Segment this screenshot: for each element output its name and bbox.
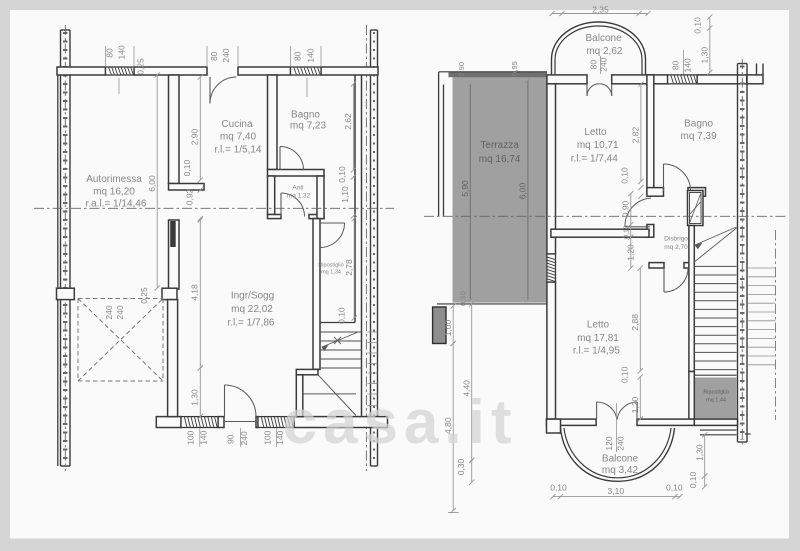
svg-text:240: 240 [115,305,125,319]
svg-text:4,18: 4,18 [190,284,200,301]
svg-text:240: 240 [616,436,626,450]
svg-text:80: 80 [104,48,114,58]
svg-text:mq 16,20: mq 16,20 [93,187,135,198]
svg-text:mq 3,42: mq 3,42 [602,465,639,476]
svg-text:Bagno: Bagno [684,119,713,130]
svg-text:5,90: 5,90 [460,180,470,197]
svg-text:mq 7,23: mq 7,23 [290,121,327,132]
svg-text:2,88: 2,88 [630,314,640,331]
svg-text:Ripostiglio: Ripostiglio [318,263,343,269]
svg-text:0,10: 0,10 [182,159,192,176]
svg-text:0,10: 0,10 [620,167,630,184]
svg-text:mq 7,39: mq 7,39 [681,131,718,142]
svg-text:casa.it: casa.it [282,388,517,457]
svg-text:100: 100 [186,430,196,444]
svg-text:r.l.= 1/7,44: r.l.= 1/7,44 [571,154,618,165]
svg-text:140: 140 [198,430,208,444]
svg-text:0,10: 0,10 [688,471,698,488]
svg-text:3,10: 3,10 [608,486,625,496]
svg-text:mq 2,62: mq 2,62 [586,46,623,57]
svg-text:mq 1,32: mq 1,32 [287,193,311,200]
svg-text:0,95: 0,95 [510,61,519,76]
svg-text:mq 2,70: mq 2,70 [664,244,688,251]
svg-text:0,10: 0,10 [666,483,683,493]
svg-text:0,10: 0,10 [620,366,630,383]
svg-text:1,20: 1,20 [630,396,640,413]
svg-text:Letto: Letto [584,127,607,138]
svg-text:0,90: 0,90 [457,62,466,77]
svg-text:240: 240 [221,48,231,62]
svg-text:0,10: 0,10 [693,17,703,34]
svg-text:0,10: 0,10 [337,166,347,183]
svg-text:1,00: 1,00 [443,319,453,336]
svg-text:140: 140 [683,58,693,72]
svg-text:240: 240 [104,305,114,319]
svg-text:Cucina: Cucina [221,119,253,130]
svg-text:80: 80 [209,51,219,61]
svg-text:0,10: 0,10 [337,307,347,324]
svg-text:240: 240 [239,431,249,445]
svg-text:80: 80 [293,51,303,61]
svg-text:mq 22,02: mq 22,02 [231,304,273,315]
svg-text:Balcone: Balcone [602,454,639,465]
svg-text:140: 140 [116,45,126,59]
svg-text:r.l.= 1/4,95: r.l.= 1/4,95 [573,346,620,357]
svg-text:Disbrigo: Disbrigo [664,236,688,243]
svg-text:0,25: 0,25 [139,287,149,304]
svg-text:6,00: 6,00 [147,175,157,192]
svg-text:0,25: 0,25 [136,58,146,75]
svg-text:Autorimessa: Autorimessa [86,174,142,185]
svg-text:Terrazza: Terrazza [480,140,519,151]
svg-text:0,10: 0,10 [550,483,567,493]
svg-text:2,78: 2,78 [344,259,354,276]
svg-text:240: 240 [598,57,608,71]
svg-text:1,10: 1,10 [340,186,350,203]
svg-text:90: 90 [226,434,236,444]
svg-text:Bagno: Bagno [291,110,320,121]
svg-text:Anti: Anti [292,185,303,192]
svg-text:Ripostiglio: Ripostiglio [703,390,728,396]
svg-text:2,82: 2,82 [631,126,641,143]
svg-text:r.l.= 1/7,86: r.l.= 1/7,86 [228,318,275,329]
svg-text:Letto: Letto [587,320,610,331]
svg-text:80: 80 [671,60,681,70]
svg-text:1,20: 1,20 [625,244,635,261]
svg-text:0,90: 0,90 [620,200,630,217]
svg-text:mq 16,74: mq 16,74 [479,154,521,165]
svg-text:mq 1,44: mq 1,44 [706,398,726,404]
svg-text:120: 120 [604,436,614,450]
svg-text:0,92: 0,92 [184,188,194,205]
svg-text:r.l.= 1/5,14: r.l.= 1/5,14 [215,145,262,156]
svg-text:1,30: 1,30 [699,47,709,64]
svg-text:mq 10,71: mq 10,71 [577,140,619,151]
svg-text:r.a.l.= 1/14,46: r.a.l.= 1/14,46 [86,199,147,210]
svg-text:6,00: 6,00 [518,182,528,199]
svg-text:1,30: 1,30 [190,389,200,406]
svg-text:140: 140 [306,48,316,62]
svg-text:1,30: 1,30 [694,444,704,461]
svg-text:0,30: 0,30 [456,458,466,475]
svg-text:2,90: 2,90 [190,128,200,145]
svg-text:0,90: 0,90 [458,291,467,306]
svg-text:mq 7,40: mq 7,40 [220,132,257,143]
svg-text:Balcone: Balcone [586,33,623,44]
svg-text:80: 80 [589,60,599,70]
svg-text:Ingr/Sogg: Ingr/Sogg [231,291,274,302]
svg-text:0,10: 0,10 [623,225,630,239]
svg-text:mq 1,34: mq 1,34 [321,270,341,276]
svg-text:100: 100 [262,430,272,444]
svg-text:mq 17,81: mq 17,81 [577,333,619,344]
svg-text:2,35: 2,35 [592,4,609,14]
svg-text:2,62: 2,62 [343,113,353,130]
